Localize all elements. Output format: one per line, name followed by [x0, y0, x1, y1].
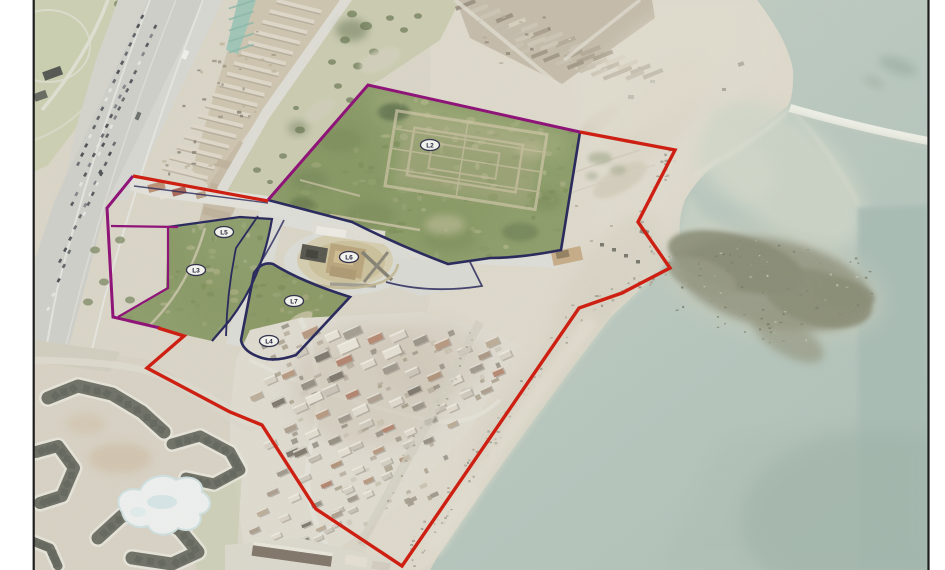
svg-text:L6: L6	[345, 254, 353, 261]
svg-text:L3: L3	[192, 267, 200, 274]
svg-text:L7: L7	[290, 298, 298, 305]
svg-text:L5: L5	[220, 229, 228, 236]
svg-text:L4: L4	[265, 338, 273, 345]
svg-text:L2: L2	[426, 142, 434, 149]
